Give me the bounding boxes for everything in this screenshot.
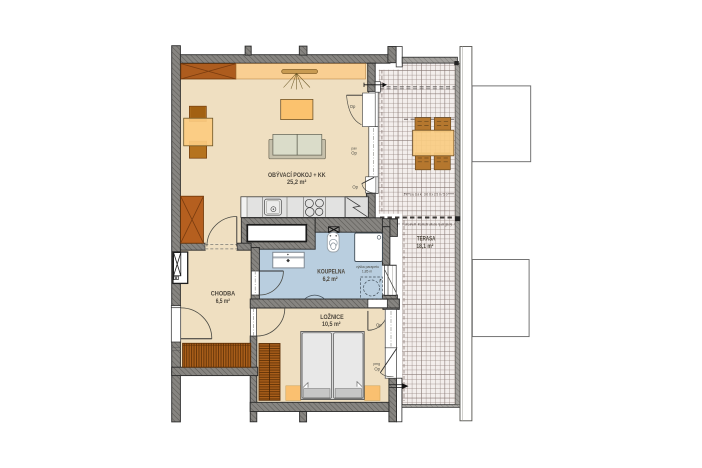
svg-text:2x sušák 300x250/50: 2x sušák 300x250/50 <box>404 192 448 196</box>
svg-text:Op: Op <box>374 366 380 371</box>
svg-text:10,5 m²: 10,5 m² <box>322 321 341 328</box>
svg-text:výška parapetu: výška parapetu <box>356 265 379 269</box>
svg-text:25,2 m²: 25,2 m² <box>287 179 306 186</box>
svg-text:Op: Op <box>352 185 358 190</box>
svg-text:úroveň konstrukce pergoly: úroveň konstrukce pergoly <box>404 222 452 226</box>
svg-text:OBÝVACÍ POKOJ + KK: OBÝVACÍ POKOJ + KK <box>268 171 326 179</box>
svg-text:Op: Op <box>351 150 357 155</box>
svg-text:LOŽNICE: LOŽNICE <box>320 313 344 321</box>
svg-text:pmg: pmg <box>373 362 380 366</box>
svg-text:18,1 m²: 18,1 m² <box>416 243 433 250</box>
svg-text:KOUPELNA: KOUPELNA <box>317 268 345 275</box>
svg-text:Op: Op <box>376 322 382 327</box>
svg-text:6,5 m²: 6,5 m² <box>216 298 230 305</box>
svg-text:TERASA: TERASA <box>417 236 436 243</box>
svg-text:CHODBA: CHODBA <box>211 291 236 298</box>
svg-text:Op: Op <box>350 104 356 109</box>
svg-text:1,85 m: 1,85 m <box>362 270 373 274</box>
svg-text:6,2 m²: 6,2 m² <box>323 276 338 283</box>
